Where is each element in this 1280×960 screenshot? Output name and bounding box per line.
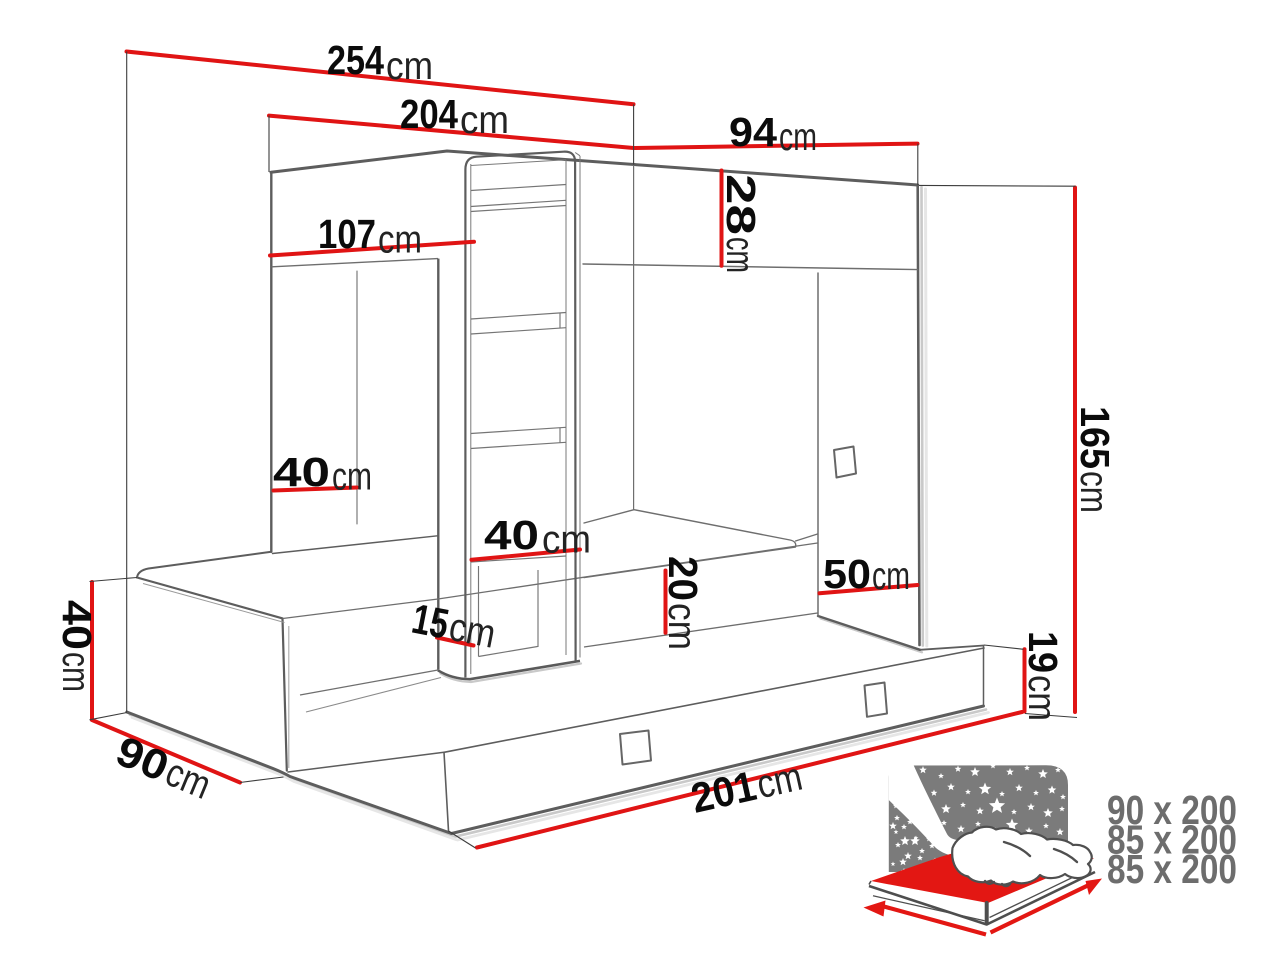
svg-text:cm: cm bbox=[378, 219, 422, 262]
svg-text:28: 28 bbox=[718, 174, 764, 235]
svg-text:165: 165 bbox=[1072, 406, 1118, 469]
svg-text:50: 50 bbox=[823, 551, 871, 597]
svg-text:40: 40 bbox=[273, 449, 330, 495]
svg-text:19: 19 bbox=[1020, 631, 1066, 673]
svg-text:cm: cm bbox=[542, 519, 591, 562]
svg-text:85 x 200: 85 x 200 bbox=[1107, 846, 1237, 892]
svg-text:cm: cm bbox=[1020, 675, 1063, 721]
svg-text:204: 204 bbox=[400, 91, 458, 137]
svg-text:cm: cm bbox=[1072, 471, 1115, 513]
svg-text:cm: cm bbox=[718, 237, 761, 273]
svg-text:cm: cm bbox=[446, 605, 500, 657]
svg-text:cm: cm bbox=[460, 99, 509, 142]
svg-text:40: 40 bbox=[484, 512, 539, 558]
svg-text:cm: cm bbox=[54, 652, 97, 692]
svg-text:20: 20 bbox=[660, 556, 706, 601]
svg-text:cm: cm bbox=[779, 116, 817, 159]
svg-text:94: 94 bbox=[729, 109, 777, 155]
svg-text:107: 107 bbox=[318, 211, 376, 257]
svg-text:254: 254 bbox=[327, 37, 384, 83]
svg-text:cm: cm bbox=[332, 456, 372, 499]
svg-text:cm: cm bbox=[660, 603, 703, 650]
svg-text:cm: cm bbox=[386, 45, 433, 88]
svg-text:40: 40 bbox=[54, 600, 100, 650]
svg-text:cm: cm bbox=[872, 555, 910, 598]
